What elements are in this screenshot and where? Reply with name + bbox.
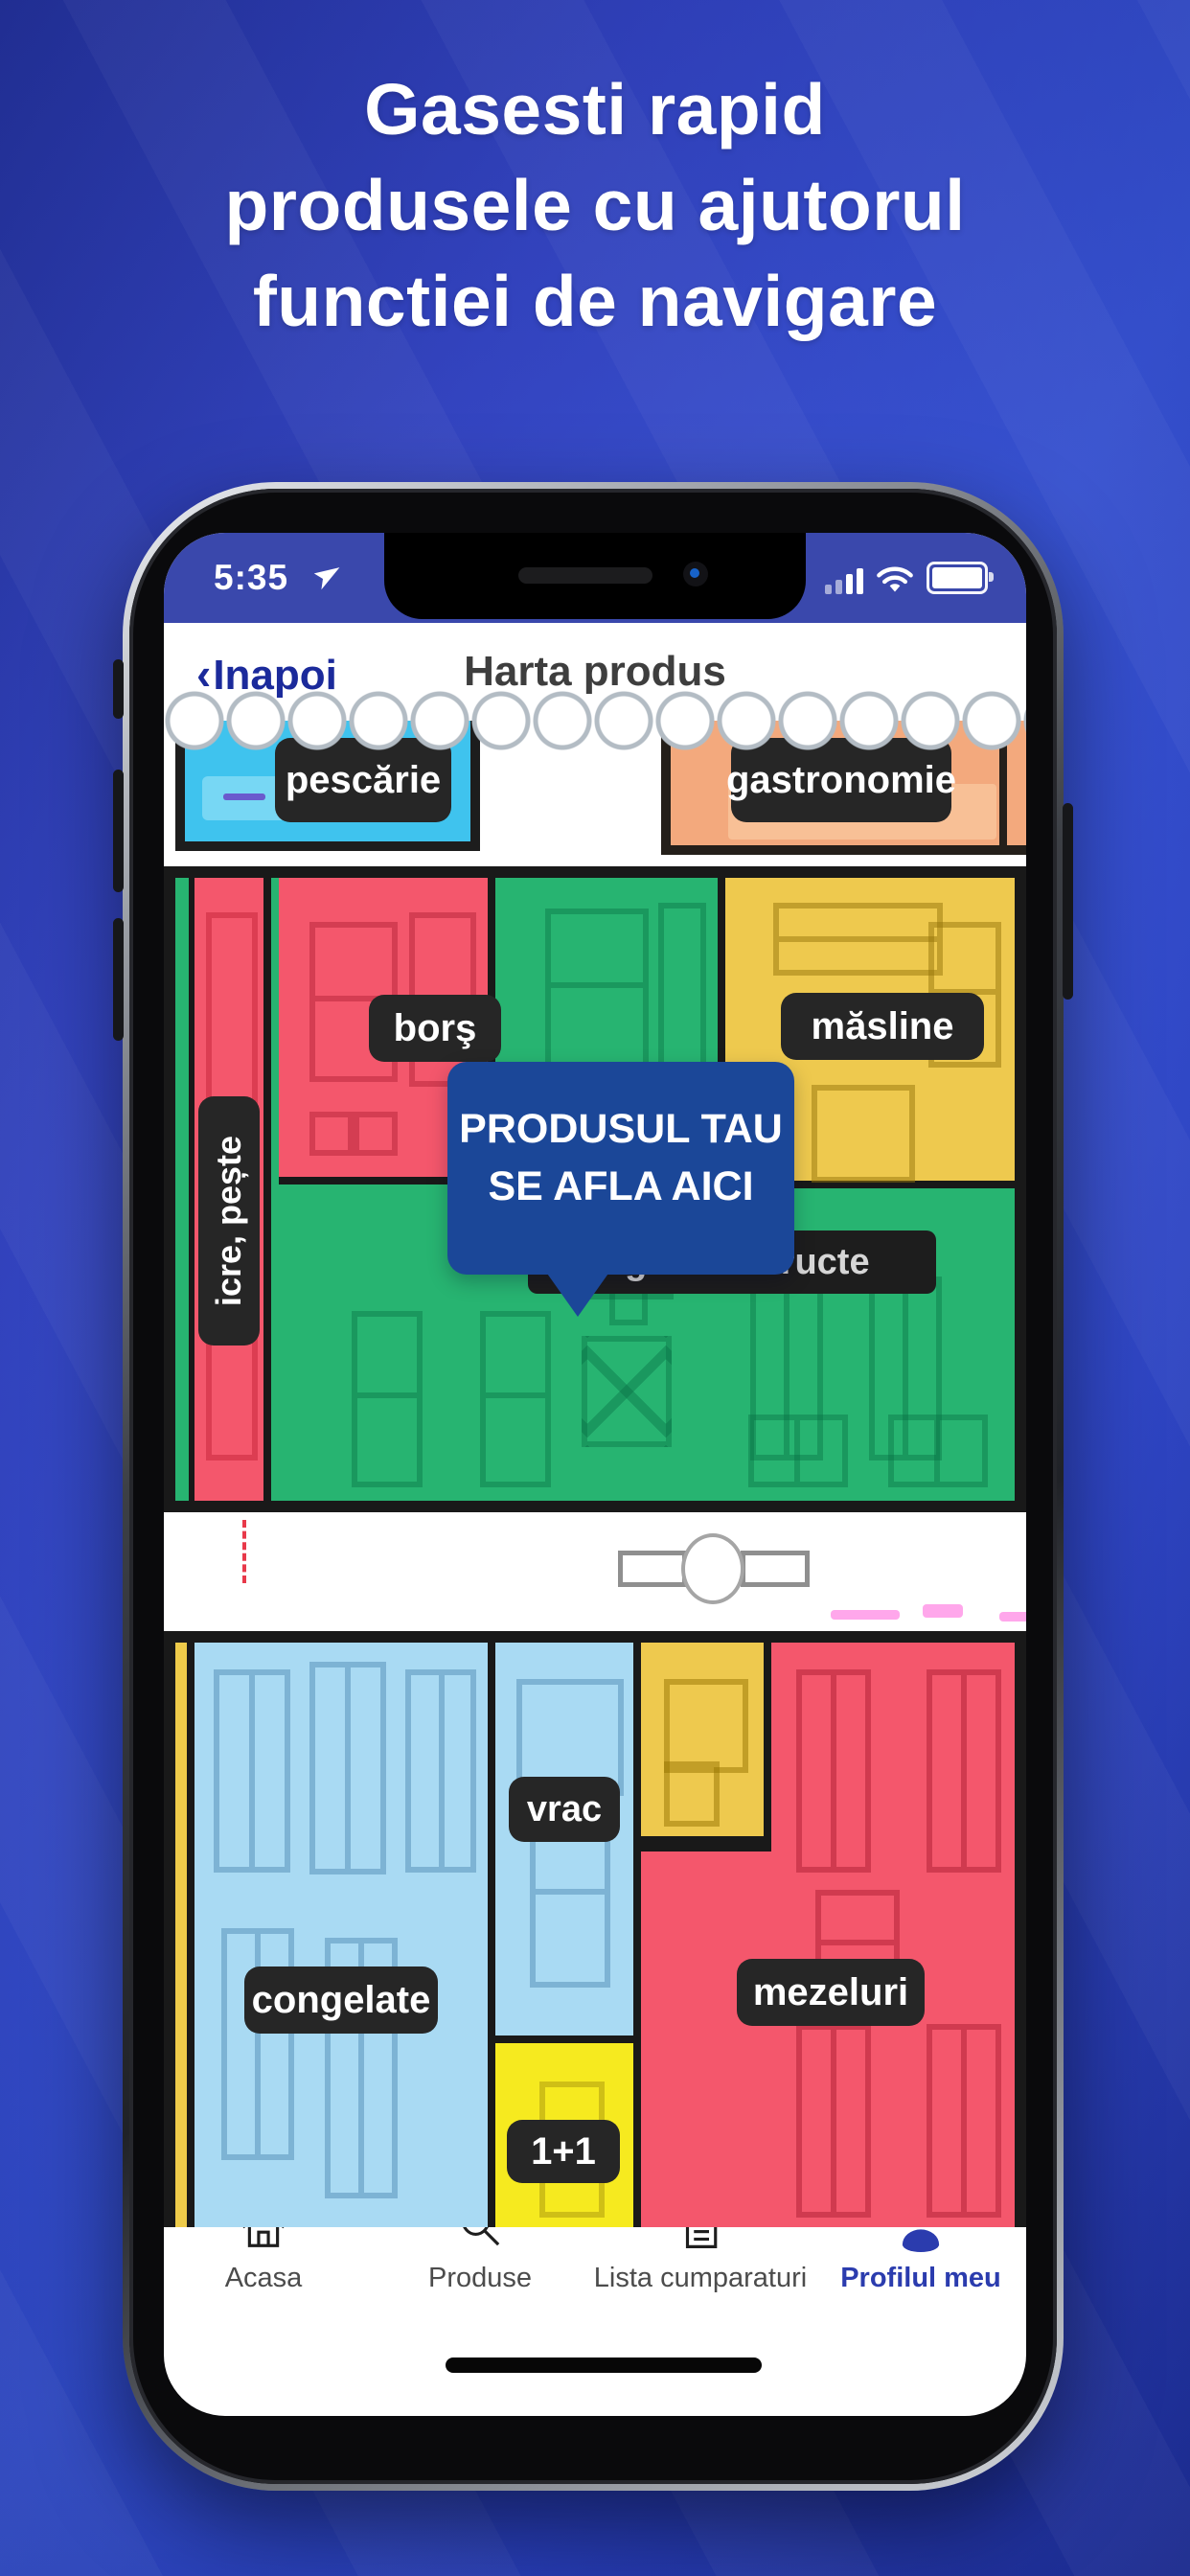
signal-icon <box>825 567 863 594</box>
shelf-outline <box>214 1669 290 1873</box>
shelf-outline <box>927 2024 1001 2218</box>
shelf-outline <box>309 1112 354 1156</box>
title-line: functiei de navigare <box>0 253 1190 349</box>
cad-red-mark <box>242 1520 246 1583</box>
shelf-outline <box>658 903 706 1077</box>
shelf-outline <box>812 1085 915 1183</box>
label-one-plus-one: 1+1 <box>507 2120 620 2183</box>
shelf-outline <box>748 1414 848 1487</box>
phone-mockup: 5:35 Hart <box>123 482 1064 2491</box>
title-line: produsele cu ajutorul <box>0 157 1190 253</box>
tooltip-tail <box>545 1271 610 1317</box>
page-title: Gasesti rapid produsele cu ajutorul func… <box>0 61 1190 349</box>
cad-pink-mark <box>999 1612 1026 1621</box>
location-arrow-icon <box>309 562 342 594</box>
map-section-mezeluri[interactable] <box>641 1851 771 2227</box>
speaker-grille <box>518 567 652 584</box>
label-mezeluri: mezeluri <box>737 1959 925 2026</box>
status-time: 5:35 <box>214 558 288 598</box>
shelf-outline <box>309 1662 386 1874</box>
shelf-outline <box>545 908 649 1069</box>
label-masline: măsline <box>781 993 984 1060</box>
map-sliver-yellow <box>175 1643 187 2227</box>
shelf-outline <box>927 1669 1001 1873</box>
shelf-outline <box>664 1761 720 1827</box>
home-indicator[interactable] <box>446 2357 762 2373</box>
xbox-marker <box>582 1336 672 1447</box>
volume-down-button <box>113 918 124 1041</box>
shelf-outline <box>405 1669 476 1873</box>
store-map[interactable]: pescărie gastronomie <box>164 721 1026 2227</box>
cad-pink-mark <box>923 1604 963 1618</box>
wifi-icon <box>875 565 915 594</box>
product-location-tooltip: PRODUSUL TAU SE AFLA AICI <box>447 1062 794 1275</box>
entrance-symbol <box>681 1533 744 1604</box>
power-button <box>1063 803 1073 1000</box>
status-icons <box>825 563 988 594</box>
shelf-outline <box>664 1679 748 1773</box>
volume-up-button <box>113 770 124 892</box>
shelf-outline <box>773 903 943 976</box>
shelf-outline <box>796 2024 871 2218</box>
entrance-gate-symbol <box>741 1551 810 1587</box>
title-line: Gasesti rapid <box>0 61 1190 157</box>
label-icre-peste: icre, pește <box>198 1096 260 1345</box>
front-camera <box>683 562 708 586</box>
shelf-outline <box>354 1112 398 1156</box>
cad-pink-mark <box>831 1610 900 1620</box>
receipt-wave-edge <box>164 690 1026 751</box>
shelf-outline <box>888 1414 988 1487</box>
label-congelate: congelate <box>244 1966 438 2034</box>
label-vrac: vrac <box>509 1777 620 1842</box>
app-screen: 5:35 Hart <box>164 533 1026 2416</box>
status-bar: 5:35 <box>164 533 1026 623</box>
shelf-outline <box>221 1928 294 2160</box>
notch <box>384 533 806 619</box>
shelf-outline <box>480 1311 551 1487</box>
label-bors: borş <box>369 995 501 1062</box>
shelf-outline <box>352 1311 423 1487</box>
entrance-gate-symbol <box>618 1551 687 1587</box>
mute-switch <box>113 659 124 719</box>
shelf-outline <box>796 1669 871 1873</box>
battery-icon <box>927 562 988 594</box>
